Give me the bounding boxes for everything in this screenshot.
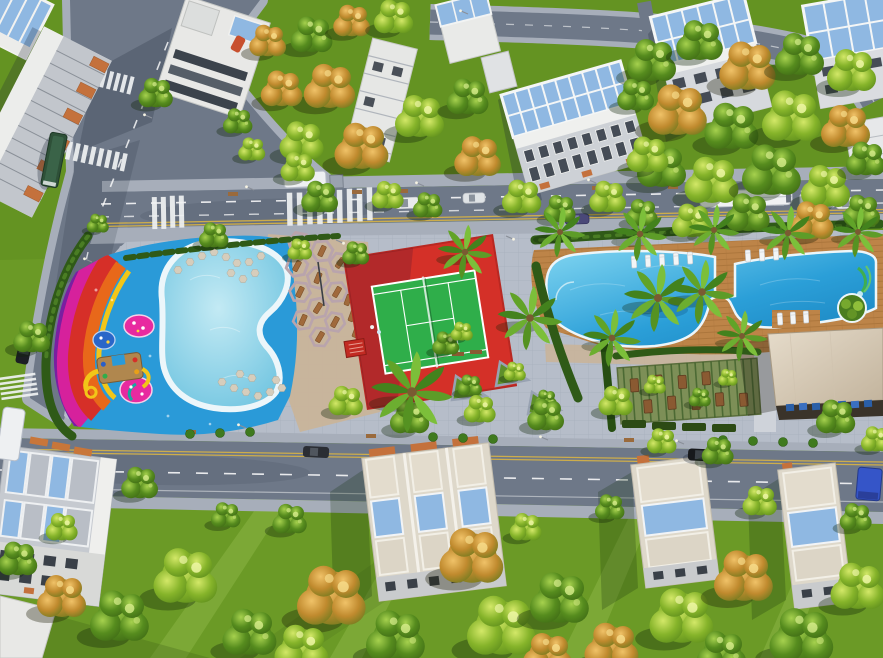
blue-truck — [856, 467, 883, 501]
community-aerial-scene — [0, 0, 883, 658]
gray-car-bottom — [303, 446, 330, 458]
pool-loungers-mid — [777, 311, 809, 325]
top-side-lane — [644, 2, 650, 36]
pool-plant-island — [838, 294, 866, 322]
clubhouse-roof — [768, 328, 883, 406]
aerial-render — [0, 0, 883, 658]
clubhouse — [738, 328, 883, 420]
kids-water-playground — [54, 236, 297, 435]
